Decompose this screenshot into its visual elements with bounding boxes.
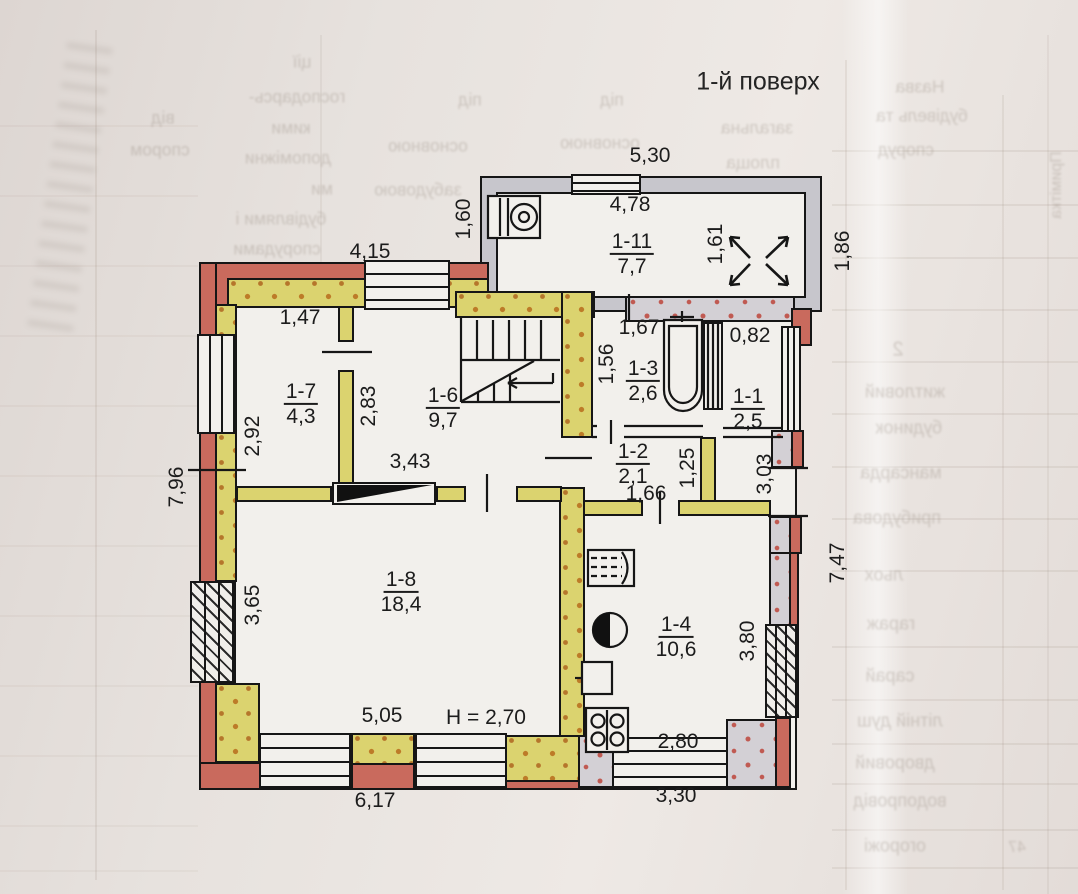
room-number: 1-1 (731, 385, 765, 410)
dimension-label: 1,60 (452, 199, 476, 240)
vent-hatch-lines (708, 324, 718, 408)
room-label: 1-32,6 (626, 357, 660, 405)
room-label: 1-117,7 (610, 230, 654, 278)
dimension-label: 1,56 (595, 344, 619, 385)
room-label: 1-69,7 (426, 384, 460, 432)
page-title: 1-й поверх (696, 68, 820, 97)
room-area: 2,1 (616, 465, 650, 488)
dimension-label: 2,80 (658, 730, 699, 754)
bathtub-symbol (664, 311, 702, 411)
room-area: 18,4 (381, 593, 422, 616)
room-label: 1-12,5 (731, 385, 765, 433)
dimension-label: 7,47 (826, 543, 850, 584)
scanned-floor-plan-page: Назвабудівель таспорудзагальнаплощапідос… (0, 0, 1078, 894)
gas-stove-symbol (586, 708, 628, 752)
dimension-label: 1,67 (619, 316, 660, 340)
sliding-door-symbol (337, 485, 432, 502)
room-label: 1-818,4 (381, 568, 422, 616)
room-area: 2,6 (626, 382, 660, 405)
dimension-label: 1,86 (831, 231, 855, 272)
room-number: 1-3 (626, 357, 660, 382)
plan-linework (0, 0, 1078, 894)
dimension-label: 1,47 (280, 306, 321, 330)
dimension-label: 5,05 (362, 704, 403, 728)
dimension-label: 1,61 (704, 224, 728, 265)
dimension-label: 4,15 (350, 240, 391, 264)
room-area: 7,7 (610, 255, 654, 278)
stair-direction-arrows (730, 237, 788, 285)
room-area: 10,6 (656, 638, 697, 661)
kitchen-sink-symbol (588, 550, 634, 586)
room-area: 2,5 (731, 410, 765, 433)
room-number: 1-2 (616, 440, 650, 465)
dimension-label: 6,17 (355, 789, 396, 813)
dimension-label: 3,43 (390, 450, 431, 474)
dimension-label: 3,03 (753, 454, 777, 495)
room-label: 1-410,6 (656, 613, 697, 661)
staircase-symbol (461, 318, 560, 402)
room-label: 1-74,3 (284, 380, 318, 428)
dimension-label: 2,92 (241, 416, 265, 457)
dimension-label: 3,30 (656, 784, 697, 808)
dimension-label: 2,83 (357, 386, 381, 427)
room-number: 1-7 (284, 380, 318, 405)
room-area: 4,3 (284, 405, 318, 428)
dimension-label: 1,25 (676, 448, 700, 489)
counter-box-symbol (575, 662, 612, 694)
dimension-label: 7,96 (165, 467, 189, 508)
dimension-label: 3,80 (736, 621, 760, 662)
room-number: 1-11 (610, 230, 654, 255)
room-area: 9,7 (426, 409, 460, 432)
dimension-label: H = 2,70 (446, 706, 526, 730)
room-number: 1-8 (384, 568, 418, 593)
water-heater-symbol (593, 613, 627, 647)
room-label: 1-22,1 (616, 440, 650, 488)
dimension-label: 3,65 (241, 585, 265, 626)
boiler-symbol (488, 196, 540, 238)
dimension-label: 0,82 (730, 324, 771, 348)
room-number: 1-6 (426, 384, 460, 409)
dimension-label: 5,30 (630, 144, 671, 168)
dimension-label: 4,78 (610, 193, 651, 217)
room-number: 1-4 (659, 613, 693, 638)
